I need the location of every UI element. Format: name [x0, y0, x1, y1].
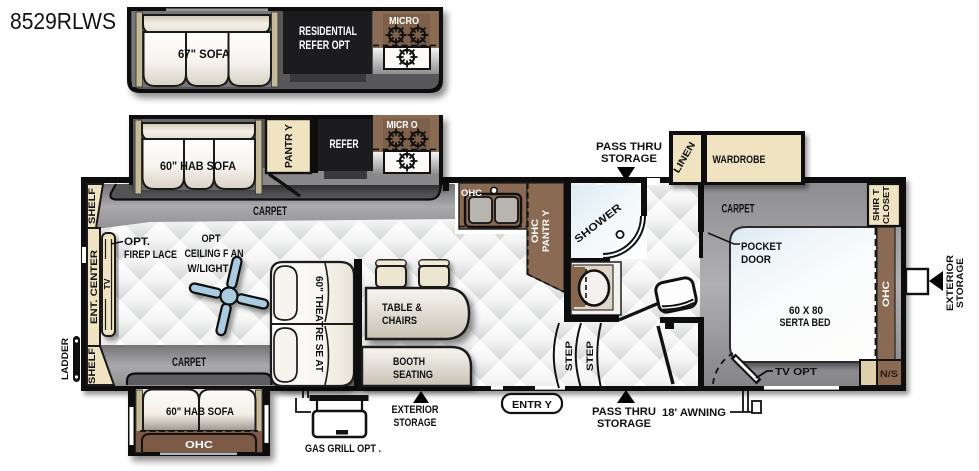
svg-text:60" HAB SOFA: 60" HAB SOFA	[160, 159, 236, 173]
svg-text:OHC: OHC	[461, 188, 482, 199]
svg-text:PASS THRU: PASS THRU	[596, 141, 662, 153]
svg-text:STORAGE: STORAGE	[394, 417, 437, 429]
svg-text:TV: TV	[102, 278, 112, 289]
svg-text:18' AWNING: 18' AWNING	[662, 407, 726, 419]
svg-text:60 X 80: 60 X 80	[789, 305, 823, 317]
svg-text:OHC: OHC	[185, 440, 213, 451]
svg-text:PANTR Y: PANTR Y	[283, 124, 295, 168]
svg-text:STORAGE: STORAGE	[597, 418, 651, 430]
svg-text:SERTA BED: SERTA BED	[780, 317, 831, 329]
svg-text:FIREP LACE: FIREP LACE	[124, 249, 177, 261]
svg-text:REFER: REFER	[330, 137, 359, 151]
svg-text:DOOR: DOOR	[741, 254, 771, 266]
svg-text:OPT: OPT	[202, 233, 221, 245]
svg-text:LADDER: LADDER	[60, 337, 70, 380]
svg-text:REFER OPT: REFER OPT	[299, 38, 350, 52]
svg-text:TV OPT: TV OPT	[775, 366, 818, 378]
svg-text:STORAGE: STORAGE	[601, 153, 657, 165]
svg-text:60" HAB SOFA: 60" HAB SOFA	[166, 406, 234, 418]
svg-text:CHAIRS: CHAIRS	[382, 315, 417, 327]
svg-text:CARPET: CARPET	[172, 355, 206, 369]
svg-text:EXTERIOR: EXTERIOR	[392, 404, 439, 416]
svg-text:8529RLWS: 8529RLWS	[10, 8, 116, 34]
svg-text:STEP: STEP	[564, 340, 575, 371]
svg-text:SHIR T: SHIR T	[871, 188, 881, 221]
svg-text:W/LIGHT: W/LIGHT	[188, 263, 229, 275]
svg-text:PASS THRU: PASS THRU	[592, 406, 656, 418]
svg-text:OHC: OHC	[530, 219, 541, 243]
svg-text:N/S: N/S	[880, 369, 898, 380]
svg-text:BOOTH: BOOTH	[393, 356, 425, 368]
svg-text:CARPET: CARPET	[253, 204, 287, 218]
svg-text:60" THEATRE SE AT: 60" THEATRE SE AT	[313, 276, 324, 372]
svg-text:OPT.: OPT.	[124, 236, 150, 248]
svg-text:OHC: OHC	[881, 281, 892, 307]
svg-text:TABLE &: TABLE &	[382, 302, 422, 314]
svg-text:SEATING: SEATING	[393, 369, 433, 381]
svg-text:67" SOFA: 67" SOFA	[178, 47, 230, 61]
svg-text:SHELF: SHELF	[87, 347, 97, 384]
svg-text:MICR O: MICR O	[387, 119, 418, 131]
svg-text:GAS GRILL OPT .: GAS GRILL OPT .	[305, 443, 381, 455]
svg-text:STEP: STEP	[585, 340, 596, 371]
svg-text:WARDROBE: WARDROBE	[713, 154, 766, 166]
svg-text:ENT. CENTER: ENT. CENTER	[89, 249, 99, 324]
svg-text:POCKET: POCKET	[741, 241, 782, 253]
svg-text:ENTR Y: ENTR Y	[512, 399, 552, 411]
svg-text:CARPET: CARPET	[722, 202, 755, 216]
svg-text:MICRO: MICRO	[389, 15, 419, 27]
svg-text:PANTR Y: PANTR Y	[541, 209, 552, 252]
svg-text:SHELF: SHELF	[87, 187, 97, 224]
svg-text:RESIDENTIAL: RESIDENTIAL	[299, 24, 357, 38]
svg-text:CLOSET: CLOSET	[881, 185, 891, 224]
svg-text:EXTERIOR: EXTERIOR	[945, 254, 955, 311]
svg-text:STORAGE: STORAGE	[955, 258, 965, 308]
